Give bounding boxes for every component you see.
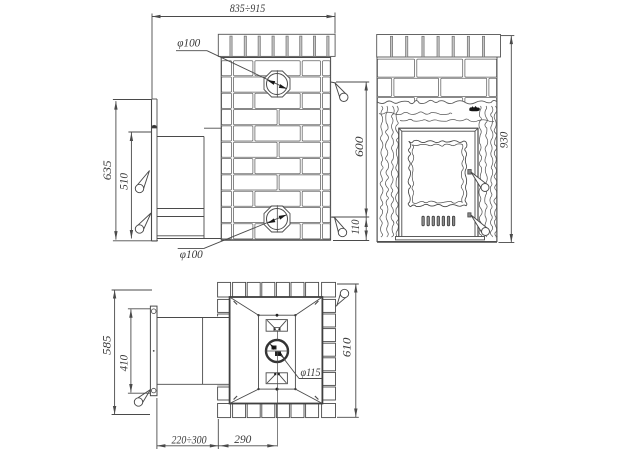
svg-text:930: 930 bbox=[499, 132, 511, 149]
svg-text:585: 585 bbox=[102, 335, 114, 355]
svg-text:φ100: φ100 bbox=[180, 249, 203, 261]
svg-text:410: 410 bbox=[119, 355, 131, 372]
svg-text:835÷915: 835÷915 bbox=[230, 1, 266, 15]
svg-text:635: 635 bbox=[102, 160, 114, 180]
svg-text:φ115: φ115 bbox=[301, 367, 321, 379]
svg-text:600: 600 bbox=[354, 136, 366, 157]
svg-text:110: 110 bbox=[350, 219, 362, 234]
svg-text:φ100: φ100 bbox=[177, 38, 200, 50]
svg-text:290: 290 bbox=[234, 432, 251, 446]
svg-text:510: 510 bbox=[118, 173, 130, 190]
svg-text:610: 610 bbox=[341, 337, 353, 357]
svg-text:220÷300: 220÷300 bbox=[172, 432, 207, 446]
